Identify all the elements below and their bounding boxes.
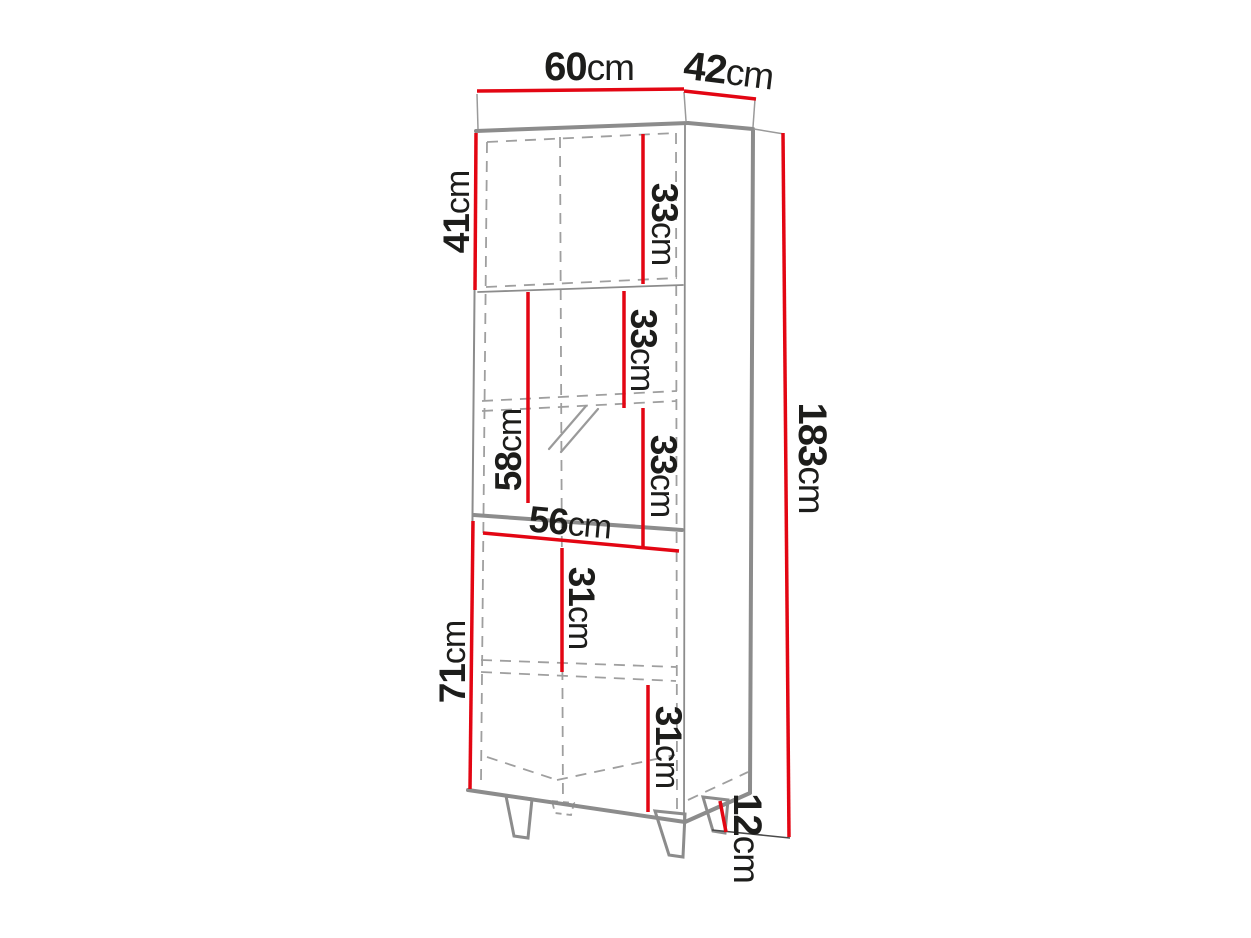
label-inner-31-upper: 31cm — [561, 567, 602, 649]
label-upper-41: 41cm — [436, 171, 477, 253]
diagram-stage: 60cm 42cm 41cm 58cm 71cm 33cm 33cm 33cm … — [0, 0, 1251, 938]
label-width-60: 60cm — [544, 45, 634, 89]
label-inner-31-lower: 31cm — [648, 706, 689, 788]
label-inner-33-low: 33cm — [643, 435, 684, 517]
label-inner-33-mid: 33cm — [623, 309, 664, 391]
label-middle-58: 58cm — [488, 409, 529, 491]
label-inner-33-top: 33cm — [644, 183, 685, 265]
label-height-183: 183cm — [790, 402, 834, 513]
label-legs-12: 12cm — [725, 793, 769, 883]
ext-width-left — [477, 94, 478, 129]
cabinet-dimension-diagram: 60cm 42cm 41cm 58cm 71cm 33cm 33cm 33cm … — [0, 0, 1251, 938]
dim-line-width-60 — [477, 89, 684, 91]
background — [0, 0, 1251, 938]
label-lower-71: 71cm — [432, 621, 473, 703]
